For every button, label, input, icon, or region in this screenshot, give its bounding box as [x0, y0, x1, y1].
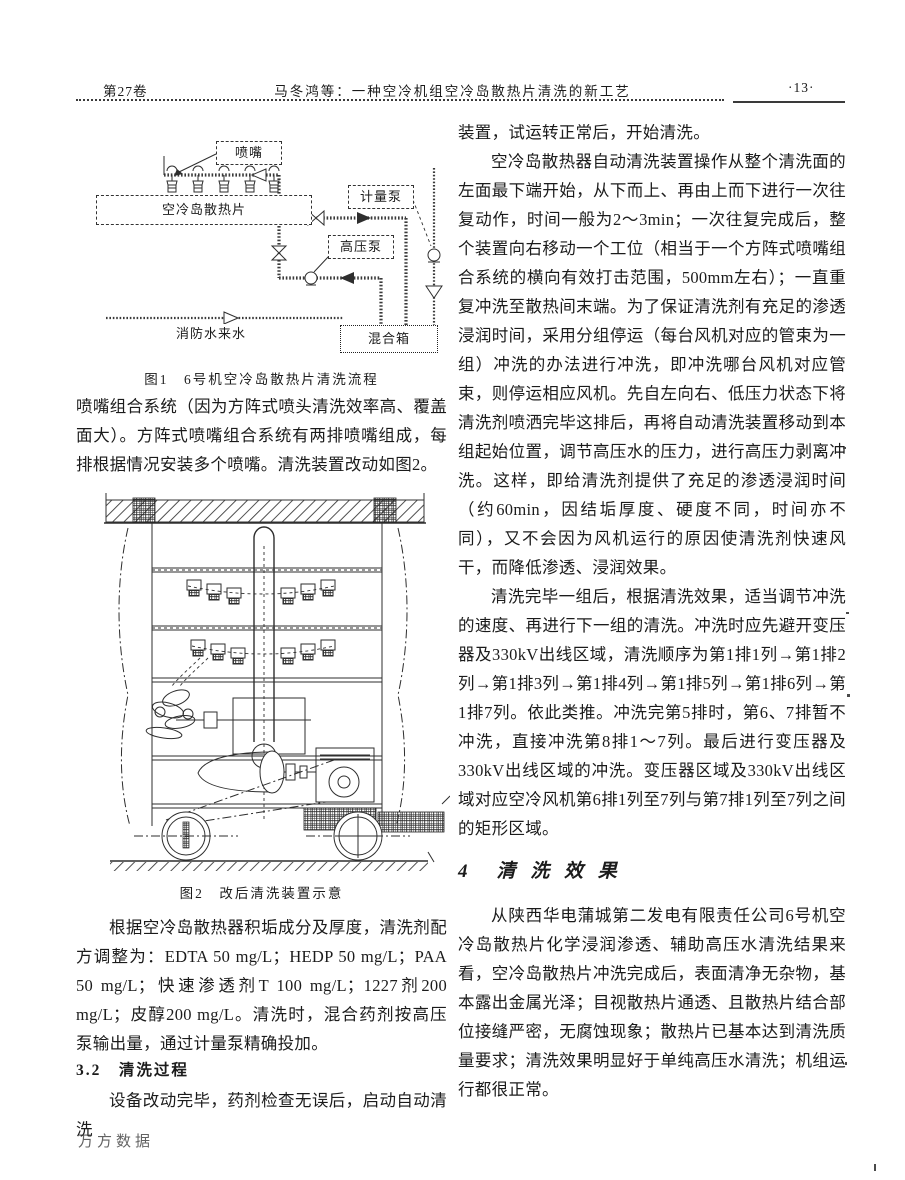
paragraph-text: 根据空冷岛散热器积垢成分及厚度，清洗剂配方调整为：EDTA 50 mg/L；HE… [76, 913, 447, 1058]
figure1-label-metering-pump: 计量泵 [348, 185, 414, 209]
header-running-title: 马冬鸿等：一种空冷机组空冷岛散热片清洗的新工艺 [0, 80, 905, 100]
section-heading-3-2: 3.2 清洗过程 [76, 1058, 447, 1080]
figure1-label-nozzle: 喷嘴 [216, 141, 282, 165]
paragraph-nozzle-system: 喷嘴组合系统（因为方阵式喷头清洗效率高、覆盖面大）。方阵式喷嘴组合系统有两排喷嘴… [76, 392, 447, 479]
scan-artifact [846, 612, 849, 614]
figure1-label-radiator: 空冷岛散热片 [96, 195, 312, 225]
paragraph-continuation: 装置，试运转正常后，开始清洗。 [458, 118, 846, 147]
wanfang-data-watermark: 万方数据 [78, 1130, 154, 1151]
scan-artifact [874, 1164, 876, 1171]
journal-page-scan: 第27卷 马冬鸿等：一种空冷机组空冷岛散热片清洗的新工艺 ·13· [0, 0, 905, 1180]
figure1-label-mixing-tank: 混合箱 [340, 325, 438, 353]
figure1-piping-diagram: 喷嘴 空冷岛散热片 计量泵 高压泵 混合箱 消防水来水 [76, 128, 448, 364]
figure2-drawing [76, 490, 450, 878]
header-page-number: ·13· [788, 80, 815, 96]
scan-artifact [843, 447, 846, 449]
section-heading-4: 4 清 洗 效 果 [458, 857, 846, 886]
figure2-cleaning-device-drawing [76, 490, 450, 878]
figure1-caption: 图1 6号机空冷岛散热片清洗流程 [76, 368, 447, 388]
paragraph-wash-sequence: 清洗完毕一组后，根据清洗效果，适当调节冲洗的速度、再进行下一组的清洗。冲洗时应先… [458, 582, 846, 843]
header-rule-solid [733, 101, 845, 103]
header-rule-dotted [76, 99, 724, 101]
figure1-label-fire-water: 消防水来水 [176, 324, 246, 344]
paragraph-operation: 空冷岛散热器自动清洗装置操作从整个清洗面的左面最下端开始，从下而上、再由上而下进… [458, 147, 846, 582]
scan-artifact [845, 1062, 847, 1065]
scan-artifact [847, 694, 850, 697]
figure2-caption: 图2 改后清洗装置示意 [76, 882, 447, 902]
paragraph-cleaning-agent-recipe: 根据空冷岛散热器积垢成分及厚度，清洗剂配方调整为：EDTA 50 mg/L；HE… [76, 913, 447, 1058]
paragraph-text: 喷嘴组合系统（因为方阵式喷头清洗效率高、覆盖面大）。方阵式喷嘴组合系统有两排喷嘴… [76, 392, 447, 479]
figure1-label-high-pressure-pump: 高压泵 [328, 235, 394, 259]
right-column-text: 装置，试运转正常后，开始清洗。 空冷岛散热器自动清洗装置操作从整个清洗面的左面最… [458, 118, 846, 1104]
paragraph-cleaning-effect: 从陕西华电蒲城第二发电有限责任公司6号机空冷岛散热片化学浸润渗透、辅助高压水清洗… [458, 901, 846, 1104]
